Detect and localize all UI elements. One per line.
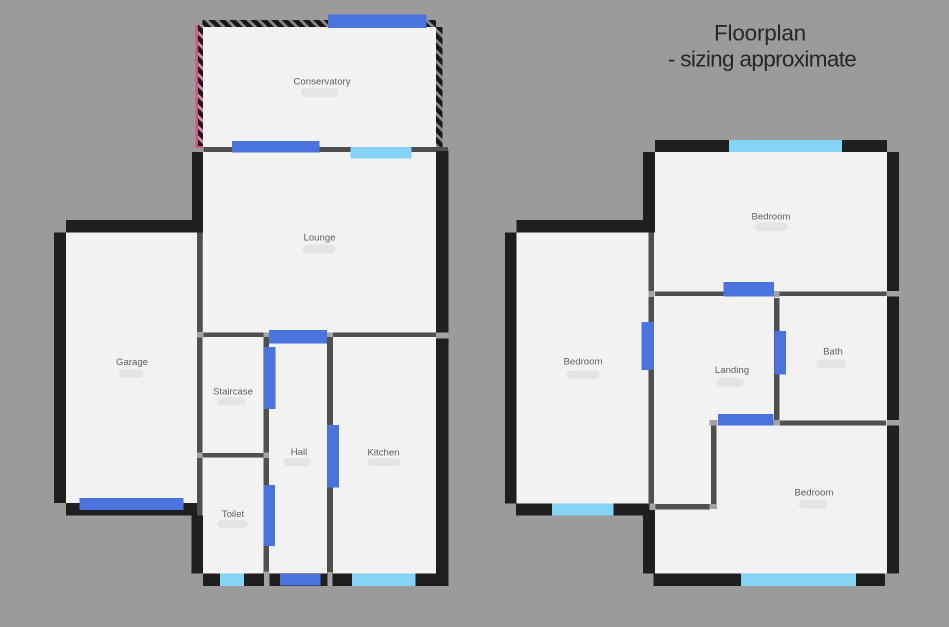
svg-text:Bedroom: Bedroom bbox=[564, 357, 603, 368]
svg-text:Bath: Bath bbox=[823, 347, 843, 358]
svg-text:Hall: Hall bbox=[291, 447, 308, 458]
svg-text:Staircase: Staircase bbox=[213, 387, 253, 398]
svg-text:Landing: Landing bbox=[715, 365, 749, 376]
svg-text:Bedroom: Bedroom bbox=[752, 212, 791, 223]
svg-text:Garage: Garage bbox=[116, 357, 148, 368]
svg-text:Toilet: Toilet bbox=[222, 509, 245, 520]
svg-text:Bedroom: Bedroom bbox=[795, 488, 834, 499]
svg-text:Kitchen: Kitchen bbox=[368, 448, 400, 459]
svg-text:- sizing approximate: - sizing approximate bbox=[668, 47, 856, 72]
svg-text:Floorplan: Floorplan bbox=[714, 21, 806, 46]
svg-text:Conservatory: Conservatory bbox=[293, 77, 350, 88]
svg-text:Lounge: Lounge bbox=[303, 233, 335, 244]
